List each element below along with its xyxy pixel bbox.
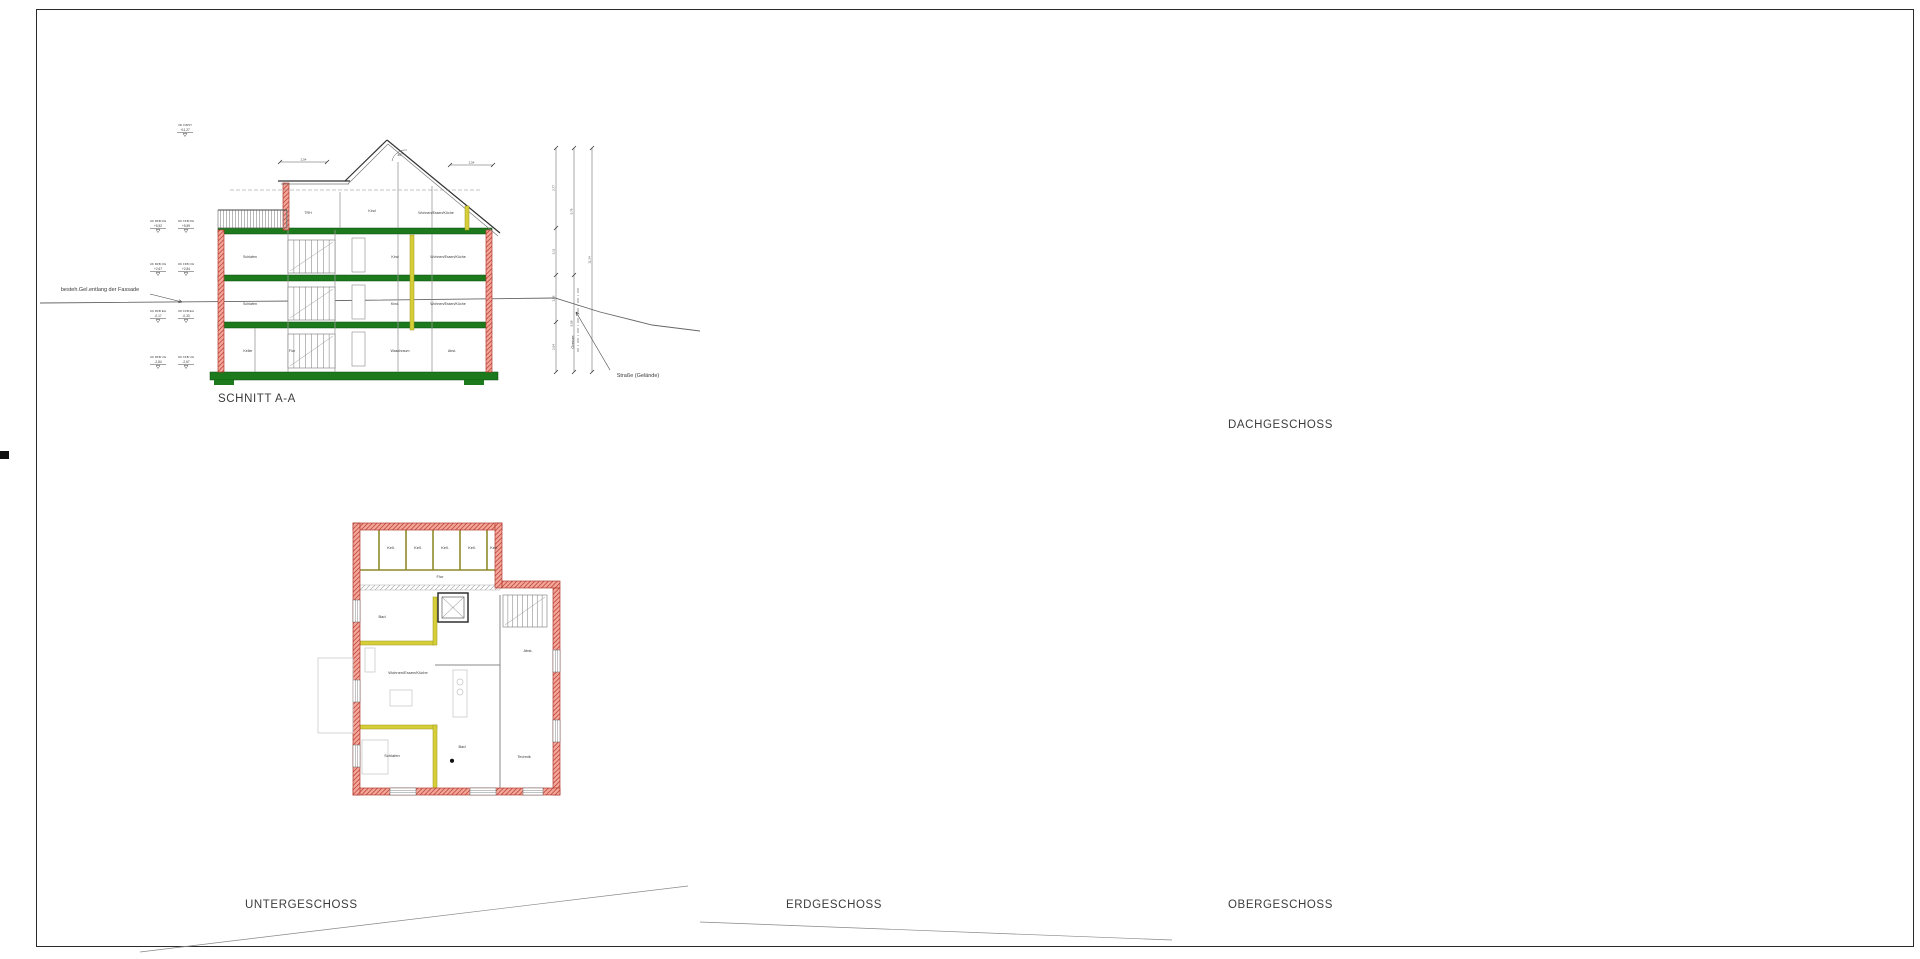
basement-plan-title: UNTERGESCHOSS: [245, 899, 358, 911]
dim-label: 5,75: [569, 208, 573, 214]
elevation-mark-label: UK RFB EG: [150, 309, 167, 313]
room-label: Kell.: [387, 545, 395, 550]
room-label: Kell.: [468, 545, 476, 550]
upper-floor-plan-title: OBERGESCHOSS: [1228, 899, 1333, 911]
dim-label: 5,59: [569, 320, 573, 326]
plan-untergeschoss: Kell.Kell.Kell.Kell.Kell.FlurAbst.BadWoh…: [318, 523, 560, 795]
elevation-mark-label: UK RFB DG: [150, 219, 167, 223]
elevation-mark-value: +2,67: [154, 267, 162, 271]
section-room-label: Abst.: [448, 349, 456, 353]
section-room-label: Kind.: [391, 302, 399, 306]
sheet-border: [0, 10, 1914, 953]
elevation-mark-label: UK RFB OG: [150, 262, 167, 266]
section-room-label: Schlafen: [243, 255, 257, 259]
dim-label: 2,54: [469, 160, 475, 164]
elevation-mark-label: OK FFB UG: [178, 355, 195, 359]
room-label: Wohnen/Essen/Küche: [388, 670, 428, 675]
elevation-mark-value: +5,52: [154, 224, 162, 228]
elevation-mark-label: OK FFB DG: [178, 219, 195, 223]
elevation-mark-label: OK FIRST: [178, 123, 192, 127]
room-label: Flur: [437, 574, 445, 579]
room-label: Schlafen: [384, 753, 400, 758]
section-room-label: Wohnen/Essen/Küche: [418, 211, 454, 215]
dim-label: 2,54: [301, 157, 307, 161]
wheelchair-icon: [450, 759, 454, 763]
section-title: SCHNITT A-A: [218, 393, 296, 405]
dim-label: 11,34: [587, 256, 591, 264]
section-room-label: Flur: [289, 349, 296, 353]
dim-label: 2,86: [551, 295, 555, 301]
section-room-label: Wohnen/Essen/Küche: [430, 302, 466, 306]
elevation-mark-value: -2,67: [182, 360, 189, 364]
room-label: Abst.: [523, 648, 532, 653]
elevation-mark-label: UK RFB UG: [150, 355, 167, 359]
elevation-mark-value: -0,33: [182, 314, 189, 318]
boundary-annotation: Grenze: [570, 335, 575, 349]
room-label: Kell.: [441, 545, 449, 550]
elevation-mark-value: +5,59: [182, 224, 190, 228]
section-room-label: Kind: [391, 255, 398, 259]
room-label: Kell.: [414, 545, 422, 550]
room-label: Bad: [378, 614, 385, 619]
elevation-mark-value: -0,17: [154, 314, 161, 318]
street-annotation: Straße (Gelände): [617, 373, 660, 379]
section-room-label: Waschraum: [390, 349, 409, 353]
dim-label: 2,77: [551, 185, 555, 191]
roof-angle-label: 30°: [397, 153, 403, 157]
section-room-label: Keller: [243, 349, 253, 353]
dim-label: 3,11: [551, 248, 555, 254]
section-schnitt: TRHKindWohnen/Essen/KücheSchlafenKindWoh…: [40, 123, 700, 385]
ground-floor-plan-title: ERDGESCHOSS: [786, 899, 882, 911]
elevation-mark-value: -2,84: [154, 360, 161, 364]
elevation-mark-label: OK FFB OG: [178, 262, 195, 266]
elevation-mark-label: OK FFB EG: [178, 309, 195, 313]
section-room-label: Kind: [368, 209, 375, 213]
room-label: Kell.: [490, 545, 498, 550]
section-room-label: Wohnen/Essen/Küche: [430, 255, 466, 259]
elevation-mark-value: +2,84: [182, 267, 190, 271]
sheet-edge-mark: [0, 451, 9, 459]
room-label: Technik: [517, 754, 531, 759]
elevation-mark-value: +11,27: [180, 128, 190, 132]
section-room-label: TRH: [304, 211, 312, 215]
attic-plan-title: DACHGESCHOSS: [1228, 419, 1333, 431]
room-label: Bad: [458, 744, 465, 749]
dim-label: 2,64: [551, 344, 555, 350]
ground-annotation: besteh.Gel.entlang der Fassade: [61, 287, 139, 293]
section-room-label: Schlafen: [243, 302, 257, 306]
architectural-drawing-sheet: TRHKindWohnen/Essen/KücheSchlafenKindWoh…: [0, 0, 1920, 959]
